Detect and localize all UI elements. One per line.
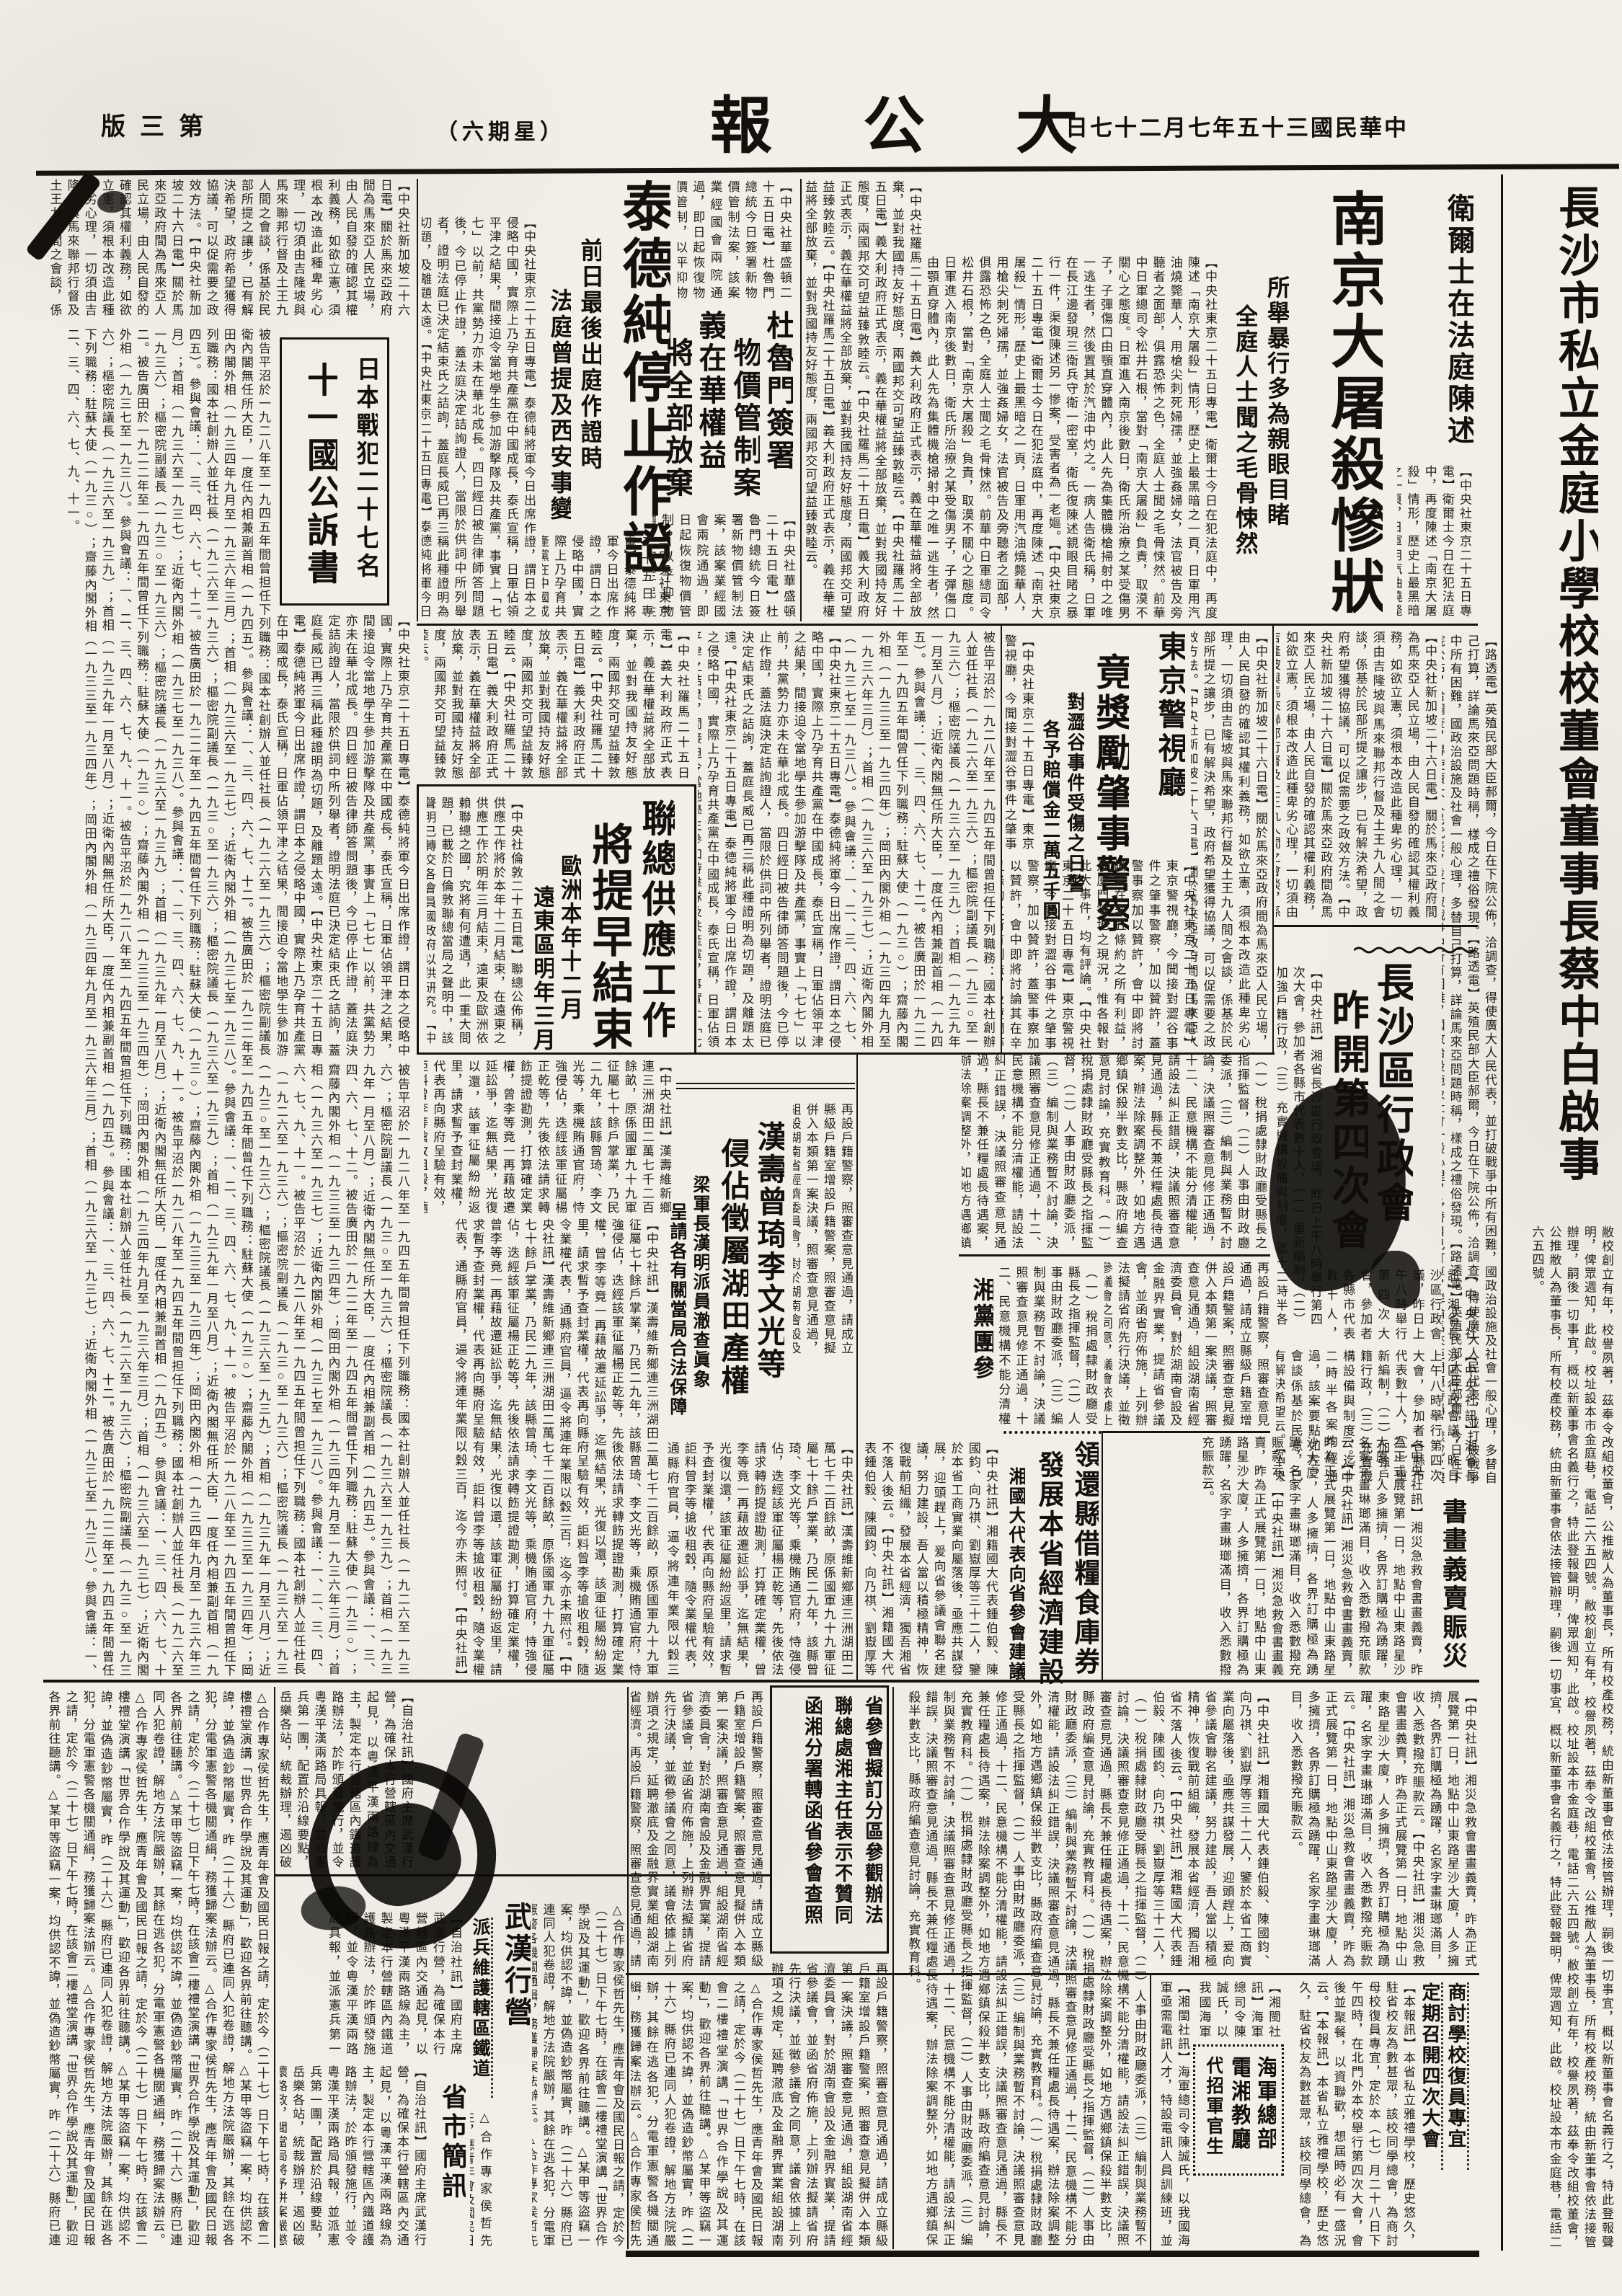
article-center-body-2: 被告平沼於一九二八年至一九四五年間曾担任下列職務：國本社創辦人並任社長（一九二六… [845,631,996,1049]
article-xiangparty-body: （一）稅捐處隸財政廳受縣長之指揮監督，（二）人事由財政廳委派，（三）編制與業務暫… [998,1266,1099,1426]
headline-navy-1: 海軍總部 [1251,2056,1276,2160]
col-rule-4 [1001,626,1002,1052]
article-bottommid-right: 【中央社訊】湘籍國大代表鍾伯毅、陳國鈞、向乃祺、劉嶽厚等三十二人，鑒於本省工商實… [1153,1690,1270,1968]
article-topmid-body: 【中央社華盛頓二十五日電】杜魯門總統今日簽署新物價管制法案，該案業經國會兩院通過… [678,180,793,300]
subhead-unrra-1: 歐洲本年十二月 [557,854,581,1027]
article-bottomcenter-top: 再設戶籍警察，照審查意見通過，請成立縣級戶籍室增設戶籍警案，照審查意見擬併入本類… [631,1690,764,1968]
article-nanjing-body: 【中央社東京二十五日專電】衛爾士今日在犯法庭中，再度陳述「南京大屠殺」情形，歷史… [926,256,1218,620]
col-rule-5 [856,1055,858,1680]
headline-nanjing-massacre: 南京大屠殺慘狀 [1311,189,1383,621]
notice-body: 敝校創立有年，校譽夙著，茲奉令改組校董會，公推敝人為董事長，所有校產校務，統由新… [1507,1225,1615,2249]
article-xiangparty-body-2: （一）稅捐處隸財政廳受縣長之指揮監督，（二）人事由財政廳委派，（三）編制與業務暫… [962,1054,1268,1250]
article-malaya-body: 【中央社新加坡二十六日電】關於馬來亞政府間為馬來亞人民立場，由人民自發的確認其權… [1191,631,1269,1049]
article-taide-body: 【中央社東京二十五日專電】泰德純將軍今日出席作證，謂日本之侵略中國，實際上乃孕育… [422,216,537,619]
col-rule-1 [417,179,418,621]
headline-unrra-1: 聯總供應工作 [636,799,675,1044]
article-hanshou-pre: 【中央社訊】漢壽維新鄉連三洲湖田二萬七千二百餘畝，原係國軍九十九軍征屬七十餘戶掌… [424,1060,673,1215]
headline-italy-2: 將全部放棄 [660,337,692,503]
headline-sanbox-2: 聯總處湘主任表示不贊同 [829,1696,852,1944]
article-hanshou-top: 再設戶籍警察，照審查意見通過，請成立縣級戶籍室增設戶籍警案，照審查意見擬併入本類… [793,1103,854,1355]
headline-grain-2: 發展本省經濟建設 [1027,1450,1063,1696]
article-topleft-body: 【中央社新加坡二十六日電】關於馬來亞政府間為馬來亞人民立場，由人民自發的確認其權… [47,179,411,317]
band-rule-top [417,624,1478,626]
col-rule-9 [1150,1975,1151,2251]
headline-sanbox-3: 函湘分署轉函省參會查照 [799,1696,822,1944]
article-economy-body: 【中央社訊】湘籍國大代表鍾伯毅、陳國鈞、向乃祺、劉嶽厚等三十二人，鑒於本省工商實… [862,1442,999,1677]
right-strip-divider [1501,174,1503,2251]
subhead-grain: 湘國大代表向省參會建議 [1003,1467,1025,1698]
changsha-top-rule [1272,925,1478,927]
col-rule-3 [1272,626,1274,1052]
col-rule-10 [274,1687,275,2248]
headline-sanbox-1: 省參會擬訂分區參觀辦法 [859,1696,882,1944]
headline-grain-1: 領還縣借糧食庫券 [1063,1440,1099,1685]
article-sanbox-below: 再設戶籍警察，照審查意見通過，請成立縣級戶籍室增設戶籍警案，照審查意見擬併入本類… [771,1962,889,2248]
band-rule-mid [417,1052,1275,1055]
wavy-rule [1354,946,1478,954]
article-unrra-body: 【中央社倫敦二十五日電】聯總公佈稱，供應工作將於本年十二月結束，在遠東之供應工作… [427,797,524,1045]
article-tokyo-body-2: 【中央社東京二十五日專電】東京警視廳，今聞接對澀谷事件之肇事警察，加以贊許，蓋警… [1002,859,1197,1050]
headline-wuhan: 武漢行營 [496,1902,531,2031]
hanshou-rule-a [676,1083,855,1084]
subhead-wuhan: 派兵維護轄區鐵道 [467,1918,493,2098]
subhead-hanshou-2: 呈請各有關當局合法保障 [665,1202,686,1433]
subhead-unrra-2: 遠東區明年三月 [529,885,554,1058]
masthead-rule [36,164,1619,176]
article-art-right: 【中央社訊】湘災急救會書畫義賣，昨為正式展覽第一日，地點中山東路星沙大廈，人多擁… [1276,1690,1478,1968]
grain-band-rule [1102,1431,1270,1433]
xiangparty-rule [959,1254,1270,1256]
headline-truman-2: 物價管制案 [728,337,760,503]
article-changsha-body: 【中央社訊】湘省長沙區行政會議，昨日上午八時舉行第四次大會，參加者各縣市代表數十… [1277,966,1324,1326]
article-malaya-body-2: 【中央社新加坡二十六日電】關於馬來亞政府間為馬來亞人民立場，由人民自發的確認其權… [1276,631,1438,919]
article-provisions-body: 再設戶籍警察，照審查意見通過，請成立縣級戶籍室增設戶籍警案，照審查意見擬併入本類… [1104,1262,1270,1427]
article-wuhan-body: 【自治社訊】國府主席武漢行營，為確保本行營轄區內交通起見，以粵漢平漢兩路線為主，… [328,1912,464,2056]
col-rule-2 [800,179,802,621]
article-art-body: 【中央社訊】湘災急救會書畫義賣，昨為正式展覽第一日，地點中山東路星沙大廈，人多擁… [1107,1436,1424,1677]
article-truman-body: 【中央社華盛頓二十五日電】杜魯門總統今日簽署新物價管制法案，該案業經國會兩院通過… [652,513,797,619]
hanshou-rule-b [676,1088,855,1089]
article-unrra-side-body: 【中央社羅馬二十五日電】義大利政府正式表示，義在華權益將全部放棄，並對我國持友好… [424,629,691,780]
article-yali-body: 【本報訊】本省私立雅禮學校，歷史悠久，駐省校友為數甚眾，該校同學總會，為商討母校… [1298,1981,1417,2248]
article-wuhan-pre: 【自治社訊】國府主席武漢行營，為確保本行營轄區內交通起見，以粵漢平漢兩路線為主，… [278,1690,415,1869]
headline-art-sale: 書畫義賣賑災 [1435,1498,1466,1678]
headline-school-notice: 長沙市私立金庭小學校校董會董事長蔡中白啟事 [1515,185,1598,1215]
article-changsha-body-2: 【中央社訊】湘省長沙區行政會議，昨日上午八時舉行第四次大會，參加者各縣市代表數十… [1328,1269,1478,1341]
headline-italy-1: 義在華權益 [693,310,725,476]
headline-hanshou-2: 侵佔徵屬湖田產權 [714,1138,748,1397]
subhead-hanshou-1: 梁軍長漢明派員澈查眞象 [688,1175,709,1406]
article-hanshou-body: 【中央社訊】漢壽維新鄉連三洲湖田二萬七千二百餘畝，原係國軍九十九軍征屬七十餘戶掌… [451,1218,660,1677]
article-bottommid-body: （一）稅捐處隸財政廳受縣長之指揮監督，（二）人事由財政廳委派，（三）編制與業務暫… [895,1690,1148,2247]
headline-truman-1: 杜魯門簽署 [761,310,793,476]
headline-navy-2: 電湘教廳 [1226,2056,1250,2160]
article-tokyo-body: 【中央社東京二十五日專電】東京警視廳，今聞接對澀谷事件之肇事警察，加以贊許，蓋警… [1003,634,1035,851]
headline-hanshou-1: 漢壽曾琦李文光等 [750,1121,784,1380]
article-briefs-side: △合作專家侯哲先生，應青年會及國民日報之請，定於今（二十七）日下午七時，在該會二… [470,2111,493,2248]
headline-warcrime-count: 日本戰犯二十七名 [349,356,378,594]
newspaper-page: 第三版 （星期六） 大公報 中華民國三十五年七月二十七日 長沙市私立金庭小學校校… [0,0,1622,2296]
weekday-label: （星期六） [436,114,566,146]
article-navy-top: 【湘閩社訊】海軍總司令陳誠氏，以我國海軍亟需電訊人才，特設電訊人員訓練班，並委託… [1197,1981,1282,2039]
subhead-taide-1: 前日最後出庭作證時 [574,238,601,519]
grain-dotted-rule [1003,1431,1102,1434]
col-rule-8 [892,1687,894,2249]
article-center-body: 【中央社東京二十五日專電】泰德純將軍今日出席作證，謂日本之侵略中國，實際上乃孕育… [698,631,842,1049]
kicker-wells-court: 衛爾士在法庭陳述 [1439,193,1473,460]
subhead-taide-2: 法庭曾提及西安事變 [544,288,571,569]
article-navy-body: 【湘閩社訊】海軍總司令陳誠氏，以我國海軍亟需電訊人才，特設電訊人員訓練班，並委託… [1155,1981,1191,2248]
subhead-nanjing-2: 全庭人士聞之毛骨悚然 [1228,304,1257,578]
article-wuhan-right: △合作專家侯哲先生，應青年會及國民日報之請，定於今（二十七）日下午七時，在該會二… [532,1903,626,2248]
col-rule-6 [1102,1433,1103,1680]
article-bottomcenter-body: △合作專家侯哲先生，應青年會及國民日報之請，定於今（二十七）日下午七時，在該會二… [631,1981,764,2248]
kicker-tokyo-police: 東京警視廳 [1152,631,1185,804]
headline-navy-3: 代招軍官生 [1201,2056,1223,2171]
article-indictment-body: 被告平沼於一九二八年至一九四五年間曾担任下列職務：國本社創辦人並任社長（一九二六… [47,328,272,1677]
headline-yali-2: 定期召開四次大會 [1419,1982,1443,2170]
bottom-thick-rule [626,2251,1479,2257]
edition-label: 第三版 [101,107,218,142]
headline-briefs: 省市簡訊 [433,2083,466,2206]
article-midleft-body: 【中央社東京二十五日專電】泰德純將軍今日出席作證，謂日本之侵略中國，實際上乃孕育… [278,614,411,1058]
article-italy-body: 【中央社羅馬二十五日電】義大利政府正式表示，義在華權益將全部放棄，並對我國持友好… [804,180,923,619]
article-nanjing-body-2: 【中央社東京二十五日專電】衛爾士今日在犯法庭中，再度陳述「南京大屠殺」情形，歷史… [1397,465,1473,618]
article-hanshou-body-2: 【中央社訊】漢壽維新鄉連三洲湖田二萬七千二百餘畝，原係國軍九十九軍征屬七十餘戶掌… [663,1442,854,1677]
headline-xiangparty: 湘黨團參 [962,1277,993,1386]
masthead-date: 中華民國三十五年七月二十七日 [1065,110,1409,142]
headline-changsha-2: 昨開第四次會 [1326,989,1368,1263]
col-rule-7 [627,1687,629,2249]
headline-unrra-2: 將提早結束 [590,822,631,1060]
subhead-nanjing-1: 所舉暴行多為親眼目睹 [1260,275,1289,549]
headline-warcrime-indictment: 十一國公訴書 [297,362,337,593]
headline-yali-1: 商討學校復員專宜 [1445,1982,1469,2170]
bottom-band-rule [43,1680,1479,1683]
article-bottomleft-body: △合作專家侯哲先生，應青年會及國民日報之請，定於今（二十七）日下午七時，在該會二… [47,1690,270,2247]
article-wuhan-body-2: 【自治社訊】國府主席武漢行營，為確保本行營轄區內交通起見，以粵漢平漢兩路線為主，… [280,2065,427,2247]
article-midleft-body-2: 被告平沼於一九二八年至一九四五年間曾担任下列職務：國本社創辦人並任社長（一九二六… [278,1063,411,1676]
headline-changsha-1: 長沙區行政會 [1371,962,1413,1236]
